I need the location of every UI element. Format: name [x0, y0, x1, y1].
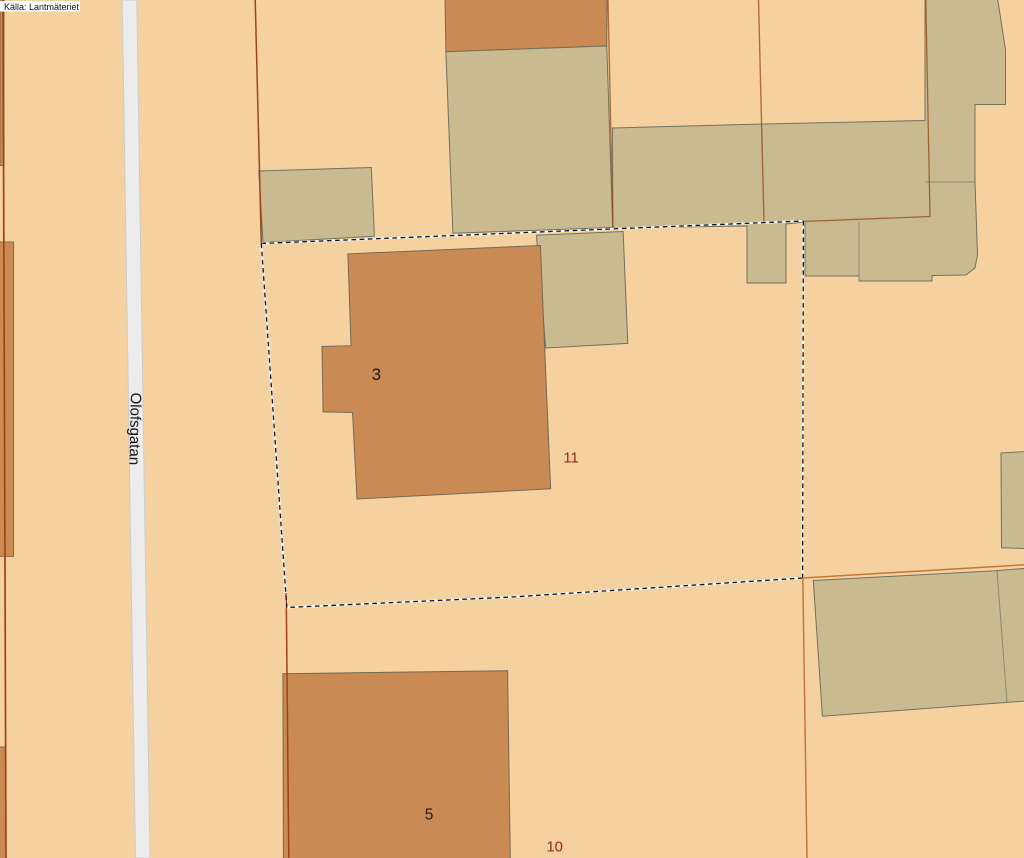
svg-text:Olofsgatan: Olofsgatan: [125, 392, 144, 465]
svg-text:5: 5: [425, 807, 434, 824]
svg-text:11: 11: [563, 451, 578, 467]
svg-text:10: 10: [546, 839, 562, 855]
svg-text:Källa: Lantmäteriet: Källa: Lantmäteriet: [4, 2, 80, 12]
svg-text:3: 3: [372, 365, 381, 384]
